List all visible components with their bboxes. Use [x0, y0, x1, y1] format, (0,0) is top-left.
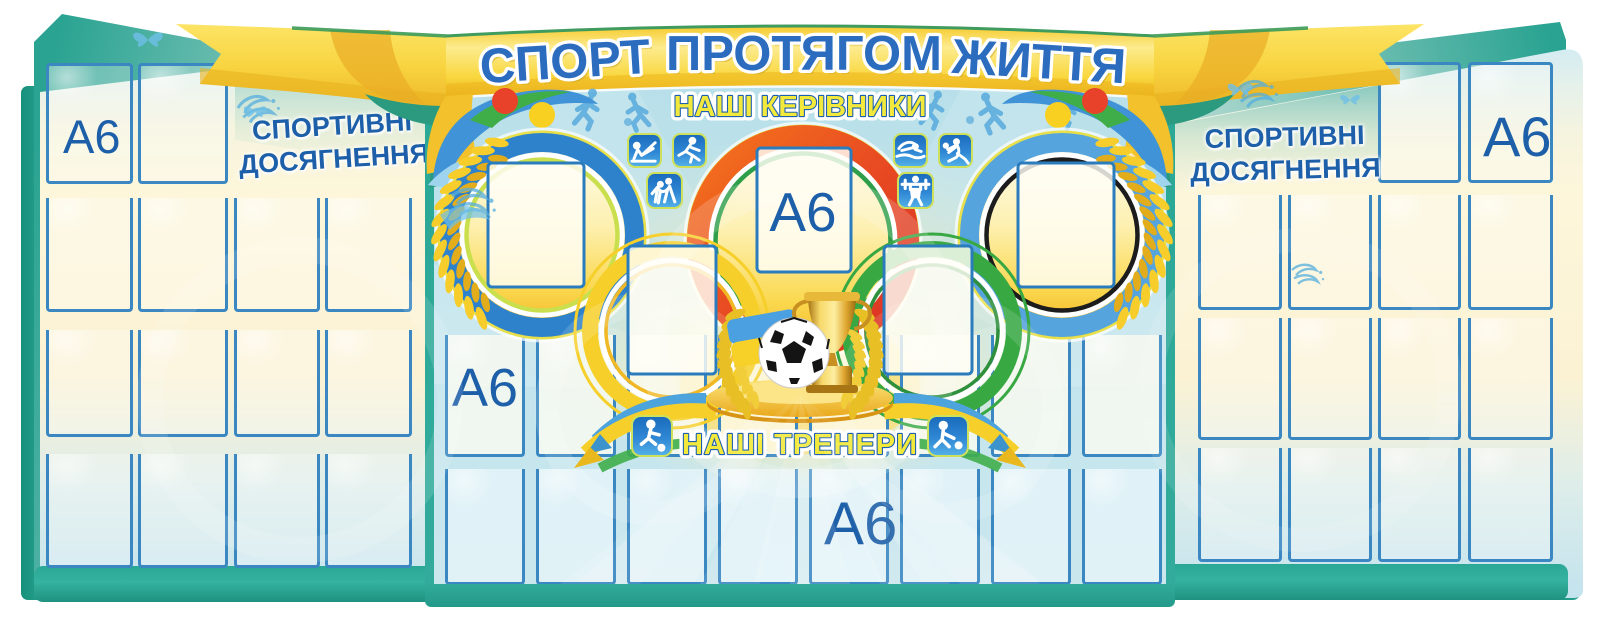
svg-text:ЖИТТЯ: ЖИТТЯ — [950, 30, 1128, 95]
svg-text:НАШІ КЕРІВНИКИ: НАШІ КЕРІВНИКИ — [674, 91, 927, 123]
svg-text:ПРОТЯГОМ: ПРОТЯГОМ — [666, 27, 942, 81]
svg-text:А6: А6 — [769, 181, 836, 243]
svg-text:СПОРТ: СПОРТ — [478, 30, 652, 94]
